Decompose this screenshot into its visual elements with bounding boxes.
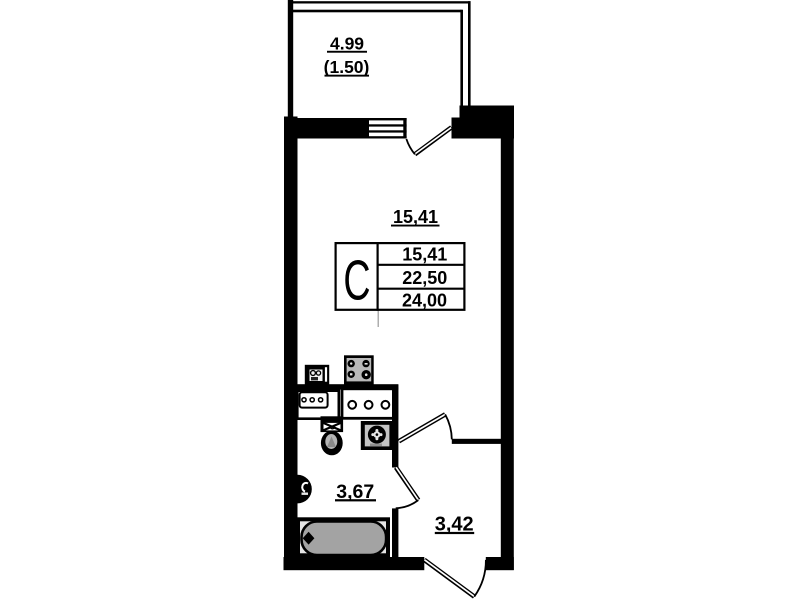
svg-text:(1.50): (1.50) [324, 57, 370, 77]
svg-text:C: C [343, 249, 370, 313]
svg-text:22,50: 22,50 [402, 268, 447, 288]
svg-text:24,00: 24,00 [402, 291, 447, 311]
svg-text:15,41: 15,41 [393, 207, 438, 227]
svg-text:4.99: 4.99 [330, 34, 364, 54]
svg-text:15,41: 15,41 [402, 244, 447, 264]
